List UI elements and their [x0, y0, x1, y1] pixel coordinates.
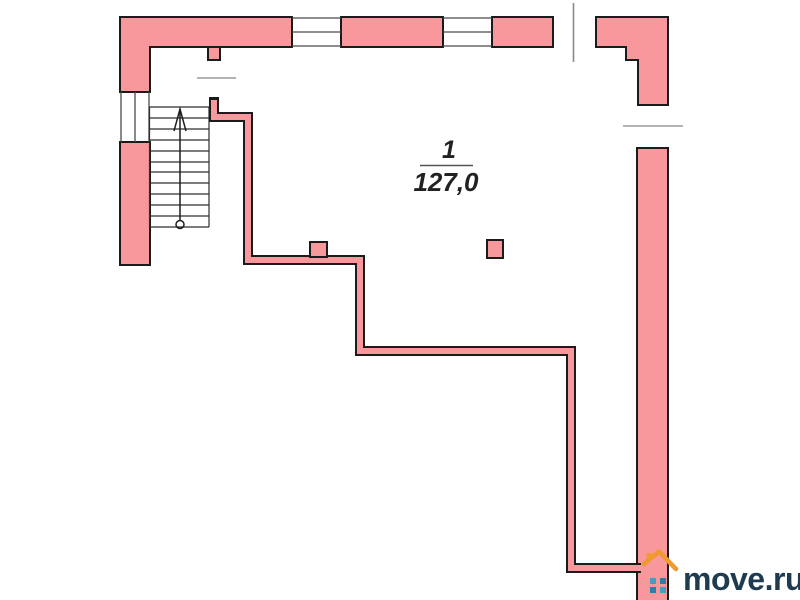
wall-top-left-corner	[120, 17, 292, 92]
stair-direction-arrow	[174, 109, 186, 229]
floorplan-canvas: 1 127,0 move.ru	[0, 0, 800, 600]
wall-top-right-corner	[596, 17, 668, 105]
staircase	[150, 107, 210, 229]
room-column	[487, 240, 503, 258]
wall-top-block-2	[492, 17, 553, 47]
logo-text: move.ru	[683, 561, 800, 597]
wall-stub-top	[208, 47, 220, 60]
room-number: 1	[442, 136, 456, 164]
outer-walls	[120, 17, 668, 600]
room-area: 127,0	[413, 167, 479, 197]
wall-left-lower	[120, 142, 150, 265]
floorplan-svg: 1 127,0 move.ru	[0, 0, 800, 600]
window-left-wall	[121, 92, 149, 142]
wall-right-column	[637, 148, 668, 600]
room-label: 1 127,0	[413, 136, 479, 197]
wall-top-block-1	[341, 17, 443, 47]
window-top-2	[443, 18, 492, 46]
window-top-1	[292, 18, 341, 46]
wall-pilaster	[310, 242, 327, 257]
